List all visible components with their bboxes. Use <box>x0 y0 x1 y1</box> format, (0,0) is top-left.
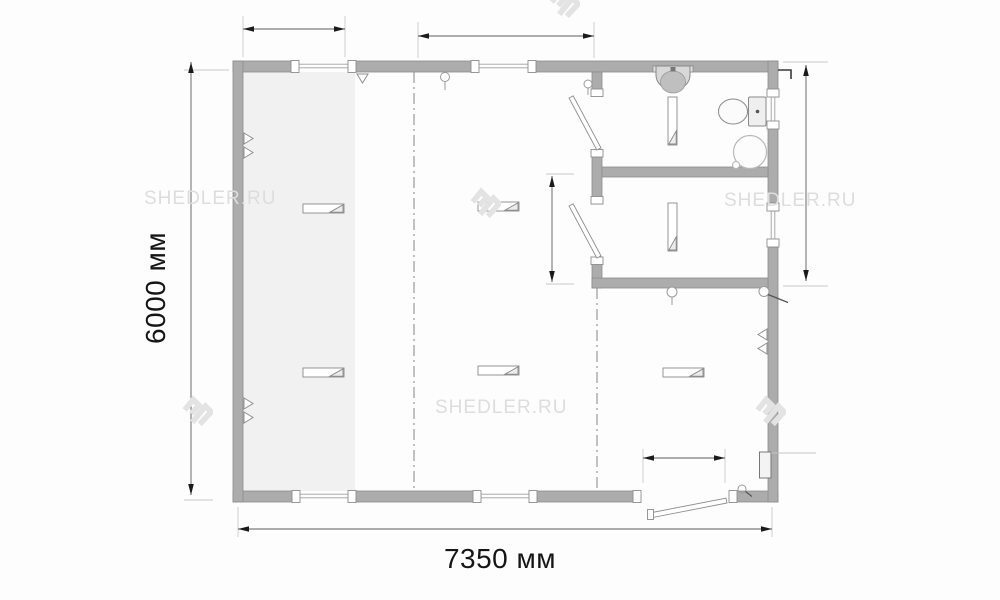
shedler-logo-icon <box>467 184 501 220</box>
door-icon <box>569 89 603 157</box>
overall-width-dimension-label: 7350 мм <box>350 543 650 575</box>
sink-icon <box>653 66 693 93</box>
electrical-panel-icon <box>760 452 817 478</box>
axis-lines <box>414 72 597 491</box>
entrance-door-icon <box>633 485 752 520</box>
floor-plan-canvas: 7350 мм 6000 мм SHEDLER.RU SHEDLER.RU SH… <box>0 0 1000 600</box>
watermark-text: SHEDLER.RU <box>144 188 276 210</box>
watermark-text: SHEDLER.RU <box>435 397 567 419</box>
shedler-logo-icon <box>752 392 786 428</box>
shedler-logo-icon <box>179 392 213 428</box>
heater-icon <box>303 97 704 377</box>
shaded-zone <box>243 72 355 491</box>
door-icon <box>569 197 603 265</box>
shedler-logo-icon <box>546 0 580 20</box>
toilet-icon <box>719 97 767 126</box>
vent-mark-icon <box>778 70 791 79</box>
overall-height-dimension-label: 6000 мм <box>140 208 170 368</box>
water-heater-icon <box>733 136 767 169</box>
watermark-text: SHEDLER.RU <box>724 190 856 212</box>
